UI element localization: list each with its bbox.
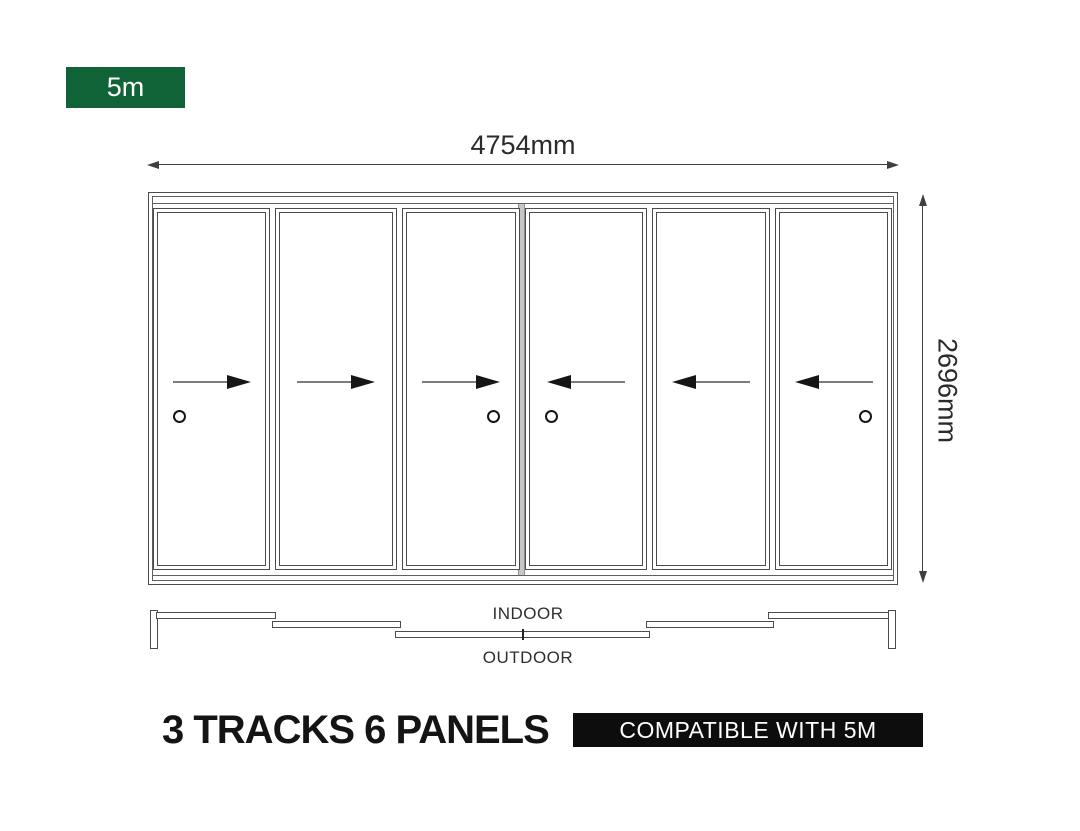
door-frame-elevation [148,192,898,585]
panel-glass [406,212,516,566]
panel-glass [779,212,888,566]
door-diagram-page: 5m 4754mm 2696mm INDOOR OUTDOOR 3 TRACKS… [0,0,1080,831]
panel-6 [775,208,892,570]
width-dimension-label: 4754mm [148,130,898,161]
plan-panel-6-track-1 [768,612,889,619]
height-dimension-label: 2696mm [932,332,963,450]
panel-glass [529,212,643,566]
page-title: 3 TRACKS 6 PANELS [162,710,549,750]
slide-direction-left-arrow-icon [795,375,873,389]
dim-arrow-down-icon [919,571,927,583]
compatibility-badge: COMPATIBLE WITH 5M [573,713,923,747]
size-badge: 5m [66,67,185,108]
slide-direction-right-arrow-icon [297,375,375,389]
panel-4 [525,208,647,570]
plan-panel-1-track-1 [156,612,276,619]
panel-handle-icon [173,410,186,423]
height-dimension-line [922,195,924,582]
slide-direction-right-arrow-icon [173,375,251,389]
dim-arrow-right-icon [887,161,899,169]
size-badge-label: 5m [107,72,145,103]
slide-direction-right-arrow-icon [422,375,500,389]
plan-jamb-right [888,610,896,649]
panel-3 [402,208,520,570]
panel-handle-icon [487,410,500,423]
compatibility-badge-label: COMPATIBLE WITH 5M [619,717,876,744]
panel-2 [275,208,397,570]
plan-center-meeting-mark [522,629,524,640]
width-dimension-line [148,164,898,166]
panel-glass [157,212,266,566]
panel-glass [279,212,393,566]
panel-handle-icon [545,410,558,423]
indoor-label: INDOOR [368,604,688,624]
panel-1 [153,208,270,570]
slide-direction-left-arrow-icon [672,375,750,389]
panel-5 [652,208,770,570]
panel-glass [656,212,766,566]
panel-handle-icon [859,410,872,423]
dim-arrow-up-icon [919,194,927,206]
outdoor-label: OUTDOOR [368,648,688,668]
sill-rail [152,575,894,576]
slide-direction-left-arrow-icon [547,375,625,389]
dim-arrow-left-icon [147,161,159,169]
